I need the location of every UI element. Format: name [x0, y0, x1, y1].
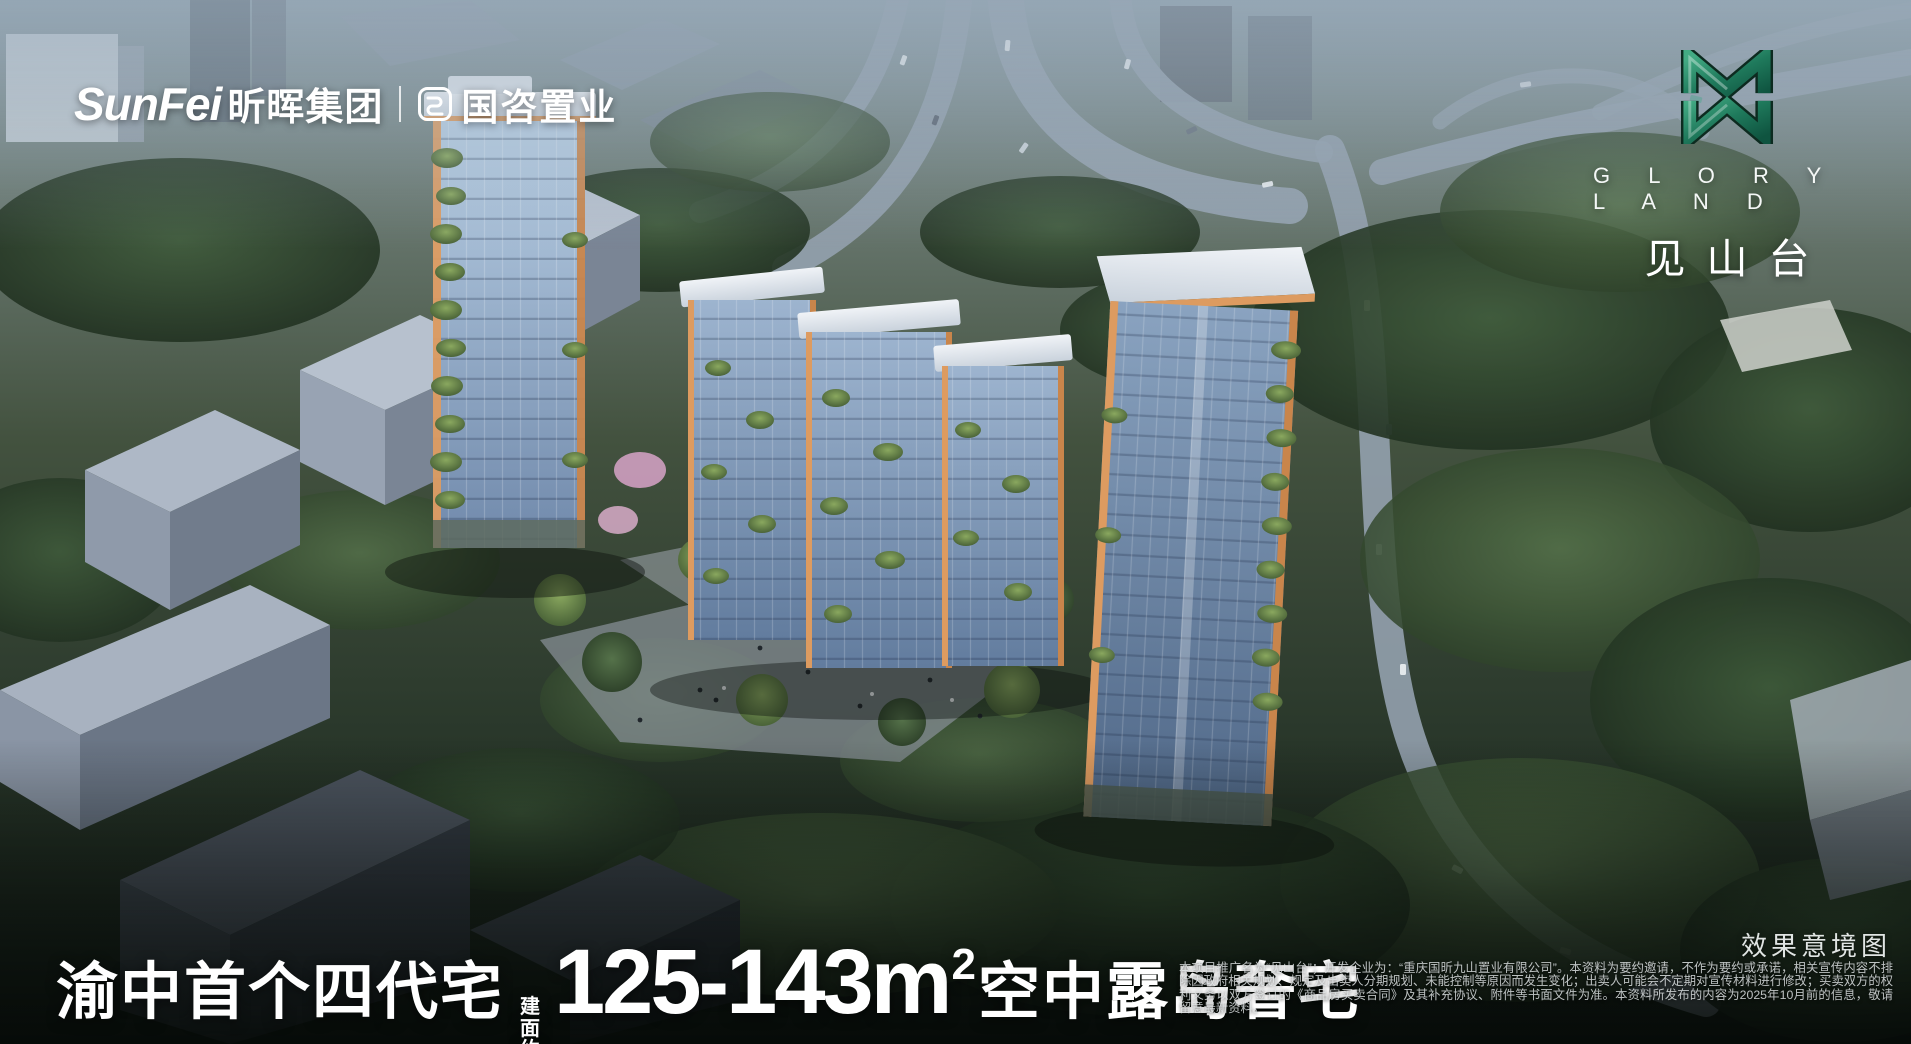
headline-prefix: 渝中首个四代宅	[56, 941, 504, 1031]
project-logo: G L O R Y L A N D 见山台	[1577, 50, 1877, 285]
headline-area-label: 建面约	[520, 997, 544, 1044]
project-name-cn: 见山台	[1624, 225, 1831, 285]
brand-divider	[399, 86, 401, 122]
headline-area-value: 125-143m	[554, 930, 949, 1035]
brand-lockup: SunFei 昕晖集团 国咨置业	[74, 76, 617, 131]
sunfei-wordmark: SunFei	[74, 77, 221, 131]
real-estate-poster: SunFei 昕晖集团 国咨置业	[0, 0, 1911, 1044]
guozi-label: 国咨置业	[461, 77, 617, 131]
headline-area-superscript: 2	[951, 940, 975, 990]
headline: 渝中首个四代宅 建面约 125-143m 2 空中露岛奢宅	[56, 930, 1362, 1044]
project-name-en: G L O R Y L A N D	[1577, 163, 1877, 215]
sunfei-cn-label: 昕晖集团	[227, 76, 383, 131]
legal-disclaimer: 本项目推广名为“见山台”；开发企业为：“重庆国昕九山置业有限公司”。本资料为要约…	[1179, 962, 1893, 1016]
render-note-label: 效果意境图	[1741, 926, 1891, 963]
double-m-monogram-icon	[1676, 50, 1778, 149]
guozi-rounded-square-icon	[417, 86, 453, 122]
